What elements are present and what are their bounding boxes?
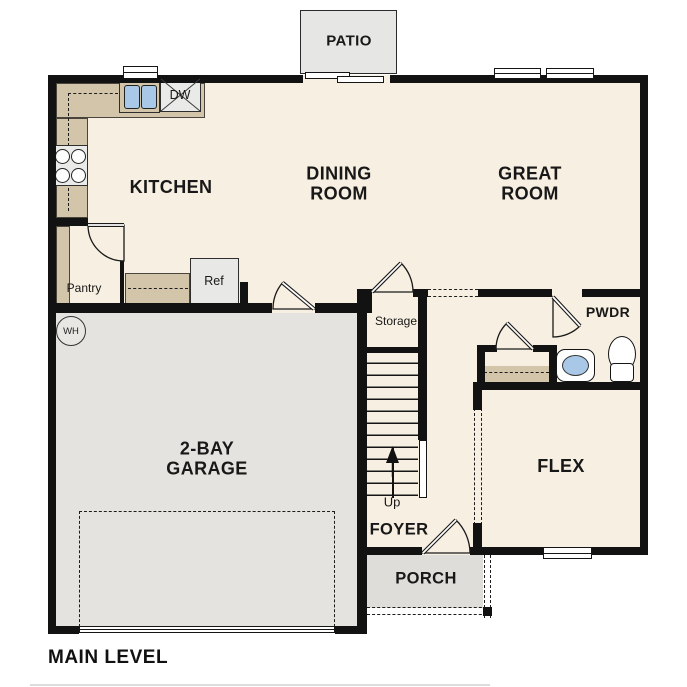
garage-door-outline: [79, 511, 335, 627]
wall-segment: [120, 250, 124, 305]
page-edge-line: [30, 684, 490, 686]
dishwasher-label: DW: [170, 88, 191, 102]
sink-icon: [119, 80, 160, 113]
wall-segment: [240, 282, 248, 313]
wall-segment: [48, 218, 88, 226]
wall-segment: [362, 347, 427, 353]
sliding-door-icon: [337, 76, 384, 83]
garage-door-icon: [79, 626, 335, 633]
wall-segment: [473, 382, 648, 390]
flex-label: FLEX: [537, 456, 585, 476]
wall-segment: [48, 75, 56, 634]
closet-rod-shelf: [484, 366, 549, 382]
wall-segment: [473, 523, 482, 547]
great-room-window-icon: [546, 68, 594, 79]
flex-opening-dashed: [474, 408, 482, 525]
patio-label: PATIO: [326, 34, 372, 51]
foyer-label: FOYER: [370, 521, 429, 540]
wall-segment: [418, 289, 427, 440]
kitchen-label: KITCHEN: [130, 177, 213, 197]
page-title: MAIN LEVEL: [48, 647, 168, 669]
wall-segment: [473, 390, 482, 410]
storage-label: Storage: [375, 315, 417, 329]
toilet-tank-icon: [610, 363, 634, 382]
garage-label: 2-BAY GARAGE: [166, 439, 247, 480]
powder-label: PWDR: [586, 305, 630, 321]
great-room-label: GREAT ROOM: [498, 164, 562, 205]
water-heater-label: WH: [63, 326, 79, 337]
sink-basin-icon: [562, 355, 589, 376]
counter-bottom: [125, 273, 190, 305]
counter-dashed-h: [68, 93, 118, 94]
stairs-center-line: [392, 448, 394, 498]
porch-edge-dashed-bottom: [367, 607, 492, 615]
stair-railing: [419, 440, 427, 498]
great-room-opening-dashed: [428, 289, 478, 297]
refrigerator-label: Ref: [204, 274, 223, 288]
wall-segment: [478, 289, 552, 297]
kitchen-window-icon: [123, 66, 158, 79]
closet-rod-dashed: [484, 372, 549, 373]
water-heater-icon: WH: [56, 316, 86, 346]
wall-segment: [640, 75, 648, 555]
counter-bottom-dashed: [128, 288, 188, 289]
wall-segment: [48, 303, 272, 313]
flex-window-icon: [543, 547, 592, 559]
stove-icon: [52, 145, 88, 186]
dining-room-label: DINING ROOM: [306, 164, 371, 205]
floor-plan: WH: [0, 0, 687, 687]
porch-label: PORCH: [395, 570, 457, 589]
great-room-window-icon: [494, 68, 541, 79]
pantry-label: Pantry: [67, 282, 102, 296]
wall-segment: [582, 289, 648, 297]
wall-segment: [48, 626, 79, 634]
up-label: Up: [384, 496, 401, 511]
porch-post: [483, 607, 492, 616]
